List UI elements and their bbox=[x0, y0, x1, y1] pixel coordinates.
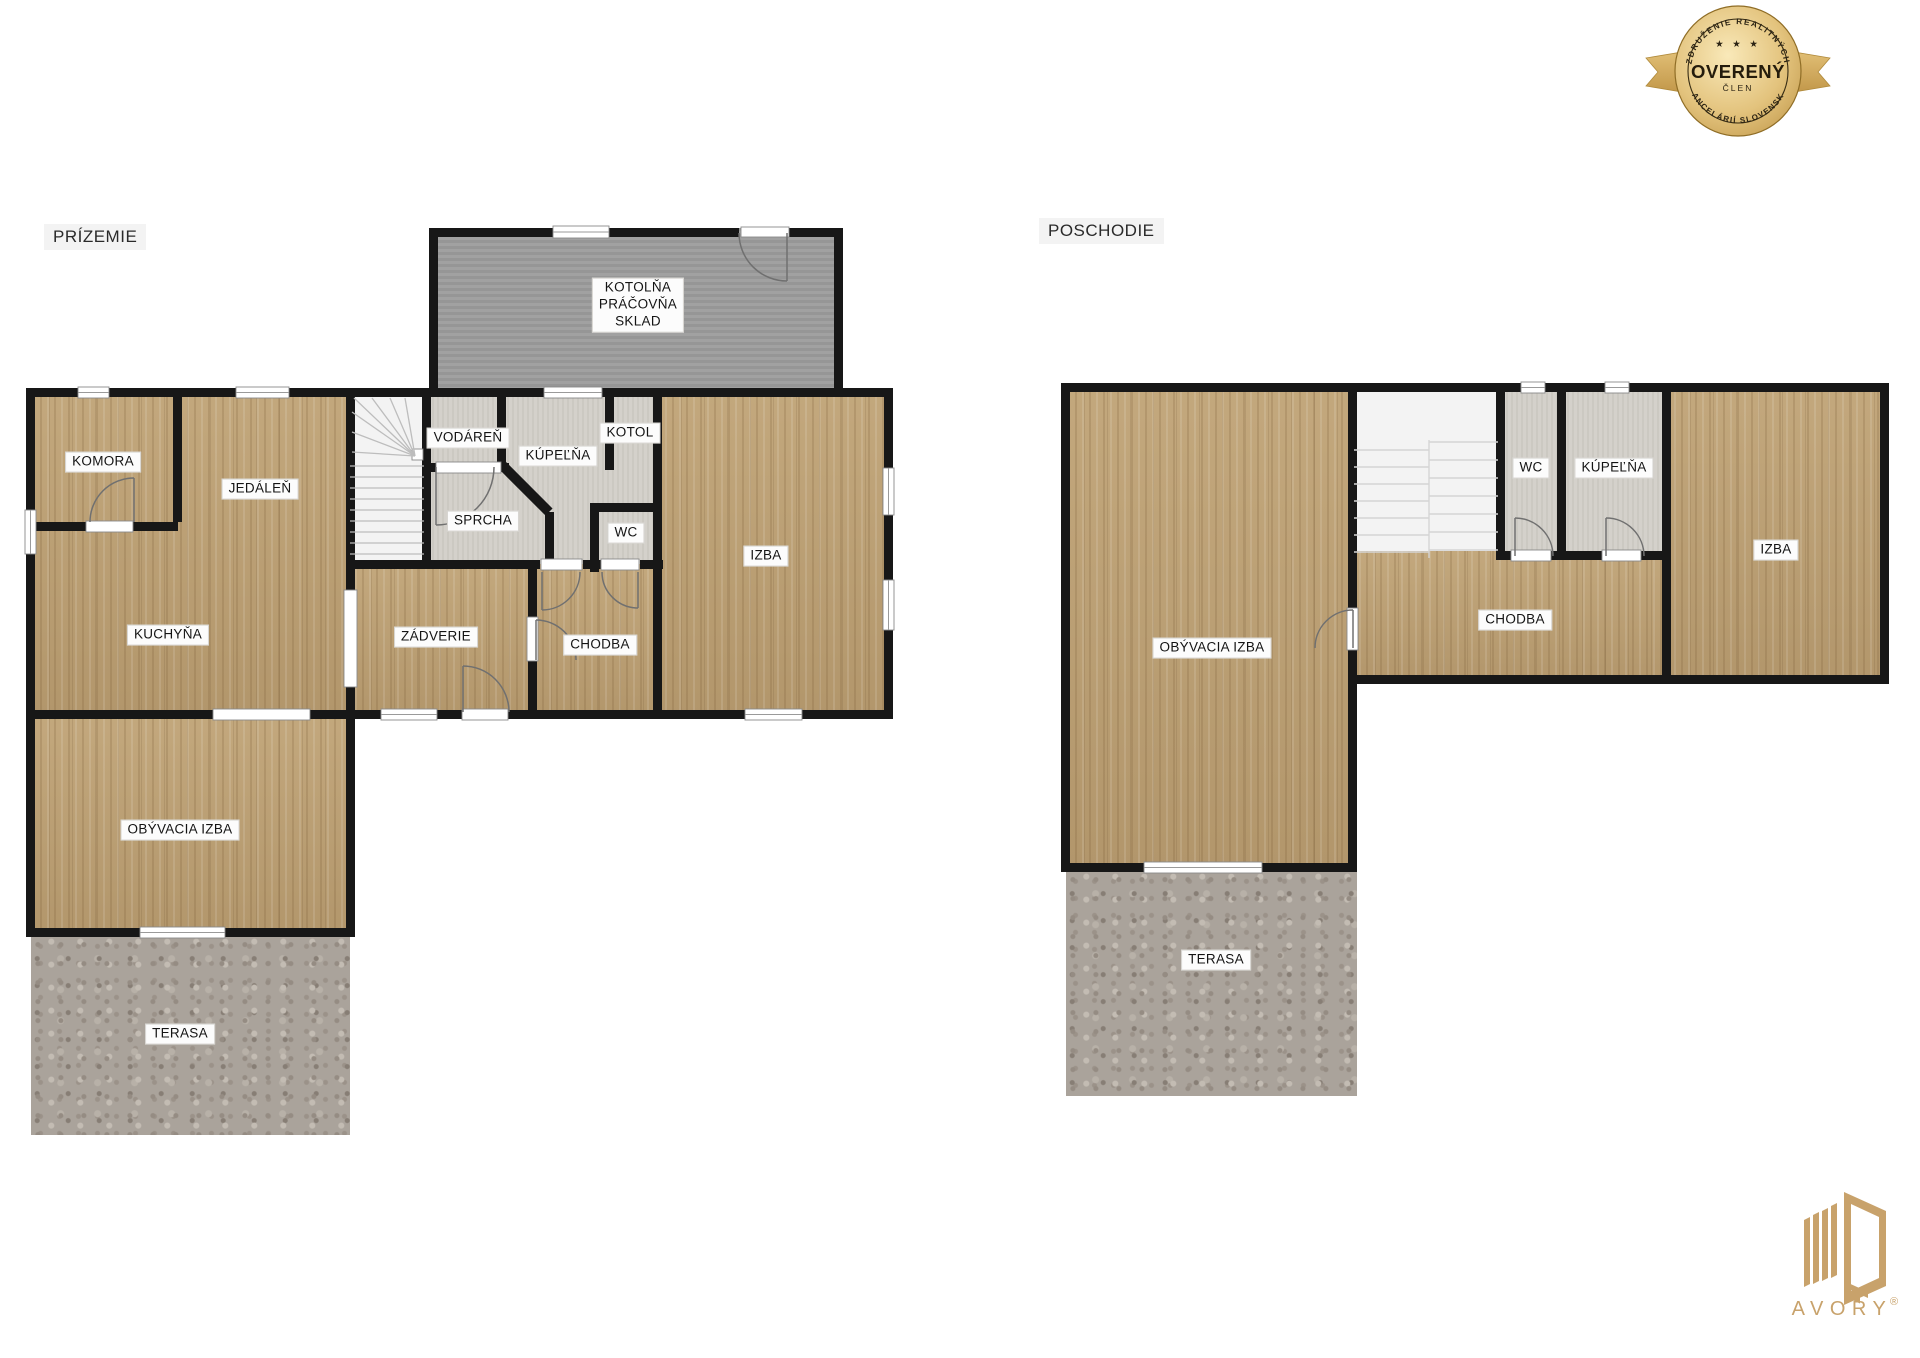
ground-floor-title: PRÍZEMIE bbox=[44, 224, 146, 250]
room-obyvacia-upper bbox=[1061, 383, 1357, 872]
ground-stairs bbox=[348, 392, 426, 564]
bath-utility-block bbox=[422, 392, 662, 572]
room-label-kotol: KOTOL bbox=[599, 423, 660, 444]
room-izba-upper bbox=[1667, 388, 1885, 684]
room-label-komora: KOMORA bbox=[65, 452, 141, 473]
terrace-upper bbox=[1066, 872, 1357, 1096]
room-label-kupelna-ground: KÚPEĽŇA bbox=[518, 446, 597, 467]
avory-logo-mark bbox=[1804, 1192, 1886, 1305]
avory-logo-text: AVORY bbox=[1792, 1298, 1893, 1320]
room-label-sprcha: SPRCHA bbox=[447, 511, 519, 532]
room-label-obyvacia-ground: OBÝVACIA IZBA bbox=[121, 820, 240, 841]
room-label-obyvacia-upper: OBÝVACIA IZBA bbox=[1153, 638, 1272, 659]
room-label-kuchyna: KUCHYŇA bbox=[127, 625, 209, 646]
badge-title: OVERENÝ bbox=[1691, 61, 1785, 82]
room-label-vodaren: VODÁREŇ bbox=[427, 428, 510, 449]
badge-stars: ★ ★ ★ bbox=[1715, 39, 1761, 50]
avory-logo: AVORY ® bbox=[1788, 1174, 1906, 1324]
floor-plan-page: PRÍZEMIE POSCHODIE bbox=[0, 0, 1920, 1358]
room-kuchyna-jedalen-komora bbox=[26, 388, 355, 718]
upper-floor-title: POSCHODIE bbox=[1039, 218, 1164, 244]
room-label-chodba-upper: CHODBA bbox=[1478, 610, 1552, 631]
overeny-clen-badge: ZDRUŽENIE REALITNÝCH ★ ★ ★ OVERENÝ ČLEN … bbox=[1638, 2, 1838, 140]
room-label-zadverie: ZÁDVERIE bbox=[394, 627, 478, 648]
room-label-wc-upper: WC bbox=[1512, 458, 1549, 479]
room-label-terasa-ground: TERASA bbox=[145, 1024, 215, 1045]
room-label-terasa-upper: TERASA bbox=[1181, 950, 1251, 971]
avory-registered-mark: ® bbox=[1890, 1296, 1898, 1308]
room-label-izba-ground: IZBA bbox=[743, 546, 788, 567]
room-label-kotolna: KOTOLŇA PRÁČOVŇA SKLAD bbox=[592, 278, 684, 333]
room-label-chodba-ground: CHODBA bbox=[563, 635, 637, 656]
room-label-izba-upper: IZBA bbox=[1753, 540, 1798, 561]
room-label-wc-ground: WC bbox=[607, 523, 644, 544]
badge-subtitle: ČLEN bbox=[1723, 83, 1754, 93]
upper-stairs bbox=[1352, 388, 1501, 560]
room-label-jedalen: JEDÁLEŇ bbox=[222, 479, 299, 500]
room-label-kupelna-upper: KÚPEĽŇA bbox=[1574, 458, 1653, 479]
